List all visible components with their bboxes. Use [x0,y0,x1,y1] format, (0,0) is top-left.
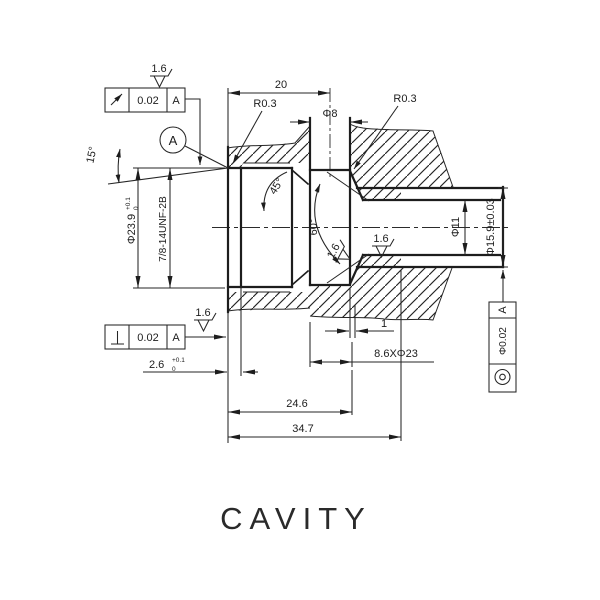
section-hatching [228,124,453,320]
dia23-9-tol-up: +0.1 [125,197,132,210]
dim-2-6-tol-up: +0.1 [172,357,185,364]
dim-24-6-label: 24.6 [286,398,307,410]
ang60-label: 60° [308,219,320,236]
fcf-conc-tol: Φ0.02 [498,327,509,355]
dia23-9-tol-dn: 0 [133,206,140,210]
fcf-perpendicularity: 0.02 A [105,325,226,349]
dim-dia23-9: Φ23.9 +0.1 0 [125,168,225,288]
dim-8-6-label: 8.6XΦ23 [374,348,418,360]
dim-dia15-9: Φ15.9±0.03 [485,187,508,302]
dim-2-6-tol-dn: 0 [172,366,176,373]
engineering-drawing: 20 Φ8 R0.3 R0.3 A 15° 0.02 A 1.6 [0,0,600,600]
datum-a: A [160,127,228,168]
concentricity-icon [495,370,510,385]
page-title: CAVITY [220,501,372,536]
dim-thread: 7/8-14UNF-2B [158,168,170,288]
fcf-perp-tol: 0.02 [137,332,158,344]
datum-a-label: A [169,133,178,148]
thread-label: 7/8-14UNF-2B [158,196,169,262]
perpendicularity-icon [111,331,124,344]
r03-right-label: R0.3 [393,93,416,105]
dim-dia8: Φ8 [290,108,368,122]
fcf-runout-tol: 0.02 [137,95,158,107]
dim-20-label: 20 [275,79,287,91]
dim-24-6: 24.6 [228,370,352,415]
finish-icon-label: 1.6 [373,233,388,245]
angle-15: 15° [84,146,228,184]
fcf-runout-datum: A [172,95,180,107]
ang45-label: 45° [267,176,286,196]
finish-icon-label: 1.6 [195,307,210,319]
dia23-9-label: Φ23.9 [126,214,138,244]
dim-8-6: 8.6XΦ23 [310,322,434,367]
finish-bottom-left: 1.6 [194,307,216,331]
runout-arrow-icon [111,94,122,105]
angle-45: 45° [264,172,287,211]
finish-cone: 1.6 [324,237,356,268]
dim-20: 20 [228,79,330,147]
drawing-canvas: 20 Φ8 R0.3 R0.3 A 15° 0.02 A 1.6 [0,0,600,600]
fcf-perp-datum: A [172,332,180,344]
dim-34-7-label: 34.7 [292,423,313,435]
dia15-9-label: Φ15.9±0.03 [485,198,497,256]
fcf-conc-datum: A [497,306,509,314]
finish-mid-right: 1.6 [372,233,394,257]
dim-1-label: 1 [381,318,387,330]
ang15-label: 15° [84,146,99,165]
fcf-concentricity: A Φ0.02 [489,302,516,392]
finish-icon-label: 1.6 [151,63,166,75]
dia8-label: Φ8 [323,108,338,120]
dia11-label: Φ11 [450,217,462,237]
finish-top-left: 1.6 [150,63,172,87]
r03-left-label: R0.3 [253,98,276,110]
dim-2-6-label: 2.6 [149,359,164,371]
